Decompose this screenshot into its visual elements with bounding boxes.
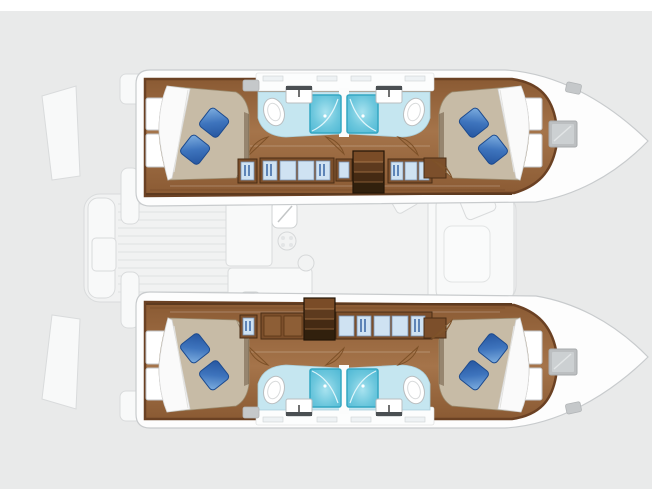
upper-bow-hatch: [549, 121, 577, 147]
saloon-table: [444, 226, 490, 282]
hull-window: [405, 76, 425, 81]
forward-cabin-bed: [439, 318, 542, 412]
hull-window: [263, 76, 283, 81]
deck-vent: [243, 407, 259, 418]
aft-cabin-bed: [146, 86, 249, 180]
cockpit-table: [92, 238, 116, 271]
hull-window: [317, 417, 337, 422]
lower-bow-hatch: [549, 349, 577, 375]
hanging-lockers: [240, 312, 432, 339]
hull-window: [263, 417, 283, 422]
transom-steps: [42, 86, 80, 180]
catamaran-floor-plan: [0, 0, 652, 489]
lower-hull-stairs: [304, 298, 335, 340]
deck-vent: [243, 80, 259, 91]
upper-hull: [136, 70, 648, 206]
hull-window: [405, 417, 425, 422]
hull-window: [351, 76, 371, 81]
transom-steps: [42, 315, 80, 409]
forward-cabin-bed: [439, 86, 542, 180]
upper-hull-stairs: [353, 151, 384, 193]
hull-window: [317, 76, 337, 81]
lower-hull: [136, 292, 648, 428]
screenshot-stage: [0, 0, 652, 489]
aft-cabin-bed: [146, 318, 249, 412]
hull-window: [351, 417, 371, 422]
galley-counter: [226, 196, 272, 266]
